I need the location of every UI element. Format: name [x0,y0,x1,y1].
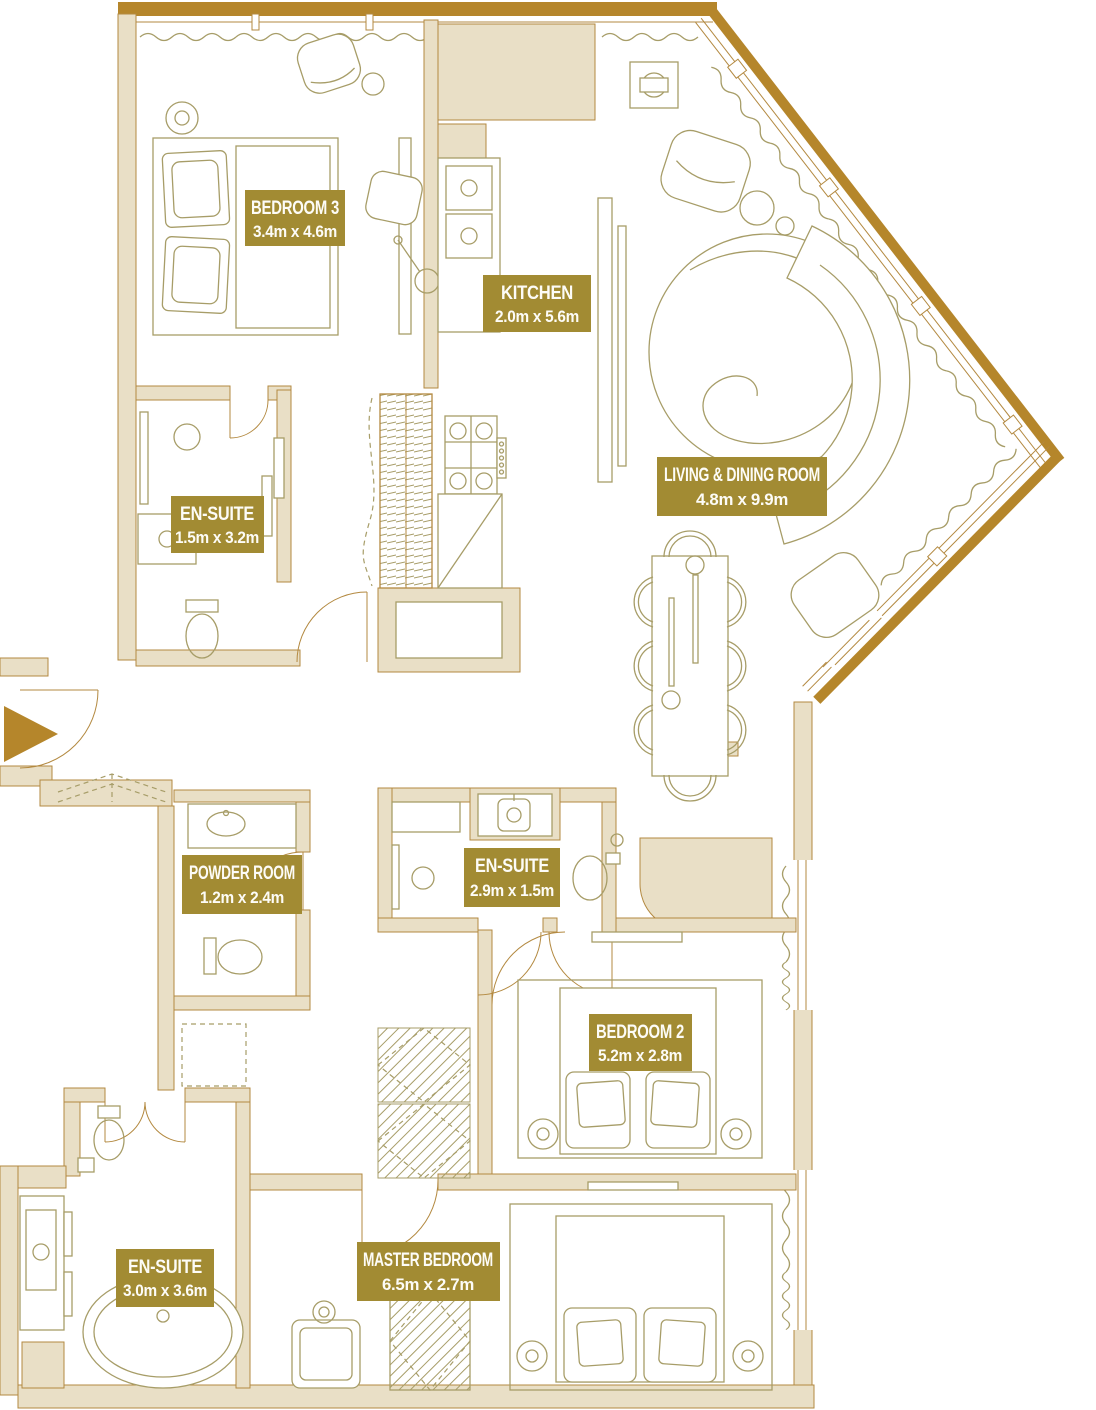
room-dims: 4.8m x 9.9m [696,490,788,509]
room-dims: 1.2m x 2.4m [200,888,284,907]
room-label-en-suite-bedroom-3: EN-SUITE 1.5m x 3.2m [171,496,264,553]
room-name: EN-SUITE [128,1257,202,1278]
room-name: MASTER BEDROOM [363,1250,493,1271]
tv-console [598,198,612,482]
room-label-living-dining-room: LIVING & DINING ROOM 4.8m x 9.9m [657,457,827,516]
room-name: BEDROOM 2 [596,1022,684,1043]
window-mullion [366,14,373,30]
room-name: BEDROOM 3 [251,198,339,219]
ensuite-master-furniture [20,1106,243,1388]
room-name: EN-SUITE [180,504,254,525]
toilet-icon [218,940,262,974]
kitchen-island [396,602,502,658]
room-dims: 3.0m x 3.6m [123,1281,207,1300]
room-label-en-suite-bedroom-2: EN-SUITE 2.9m x 1.5m [464,848,560,907]
room-name: LIVING & DINING ROOM [664,465,820,486]
bedroom3-furniture [153,30,439,335]
room-dims: 2.9m x 1.5m [470,881,554,900]
window-mullion [252,14,259,30]
floor-plan: BEDROOM 3 3.4m x 4.6m KITCHEN 2.0m x 5.6… [0,0,1096,1410]
living-dining-furniture [598,62,910,801]
room-label-kitchen: KITCHEN 2.0m x 5.6m [483,275,591,332]
shower-icon [412,867,434,889]
room-dims: 2.0m x 5.6m [495,307,579,326]
room-dims: 3.4m x 4.6m [253,222,337,241]
drawers-icon [378,1104,470,1178]
room-dims: 1.5m x 3.2m [175,528,259,547]
room-dims: 6.5m x 2.7m [382,1275,474,1294]
drawers-icon [390,1292,470,1390]
room-dims: 5.2m x 2.8m [598,1046,682,1065]
room-name: POWDER ROOM [189,863,295,884]
floor-plan-page: BEDROOM 3 3.4m x 4.6m KITCHEN 2.0m x 5.6… [0,0,1096,1410]
room-label-powder-room: POWDER ROOM 1.2m x 2.4m [182,855,302,914]
room-label-en-suite-master: EN-SUITE 3.0m x 3.6m [116,1249,214,1307]
room-label-master-bedroom: MASTER BEDROOM 6.5m x 2.7m [357,1242,500,1301]
room-name: EN-SUITE [475,856,549,877]
toilet-icon [94,1120,124,1160]
entry-arrow-icon [4,706,58,762]
room-label-bedroom-2: BEDROOM 2 5.2m x 2.8m [589,1014,692,1071]
drawers-icon [378,1028,470,1102]
dining-table [652,556,728,776]
room-name: KITCHEN [501,283,573,304]
room-label-bedroom-3: BEDROOM 3 3.4m x 4.6m [245,190,345,246]
shower-icon [174,424,200,450]
